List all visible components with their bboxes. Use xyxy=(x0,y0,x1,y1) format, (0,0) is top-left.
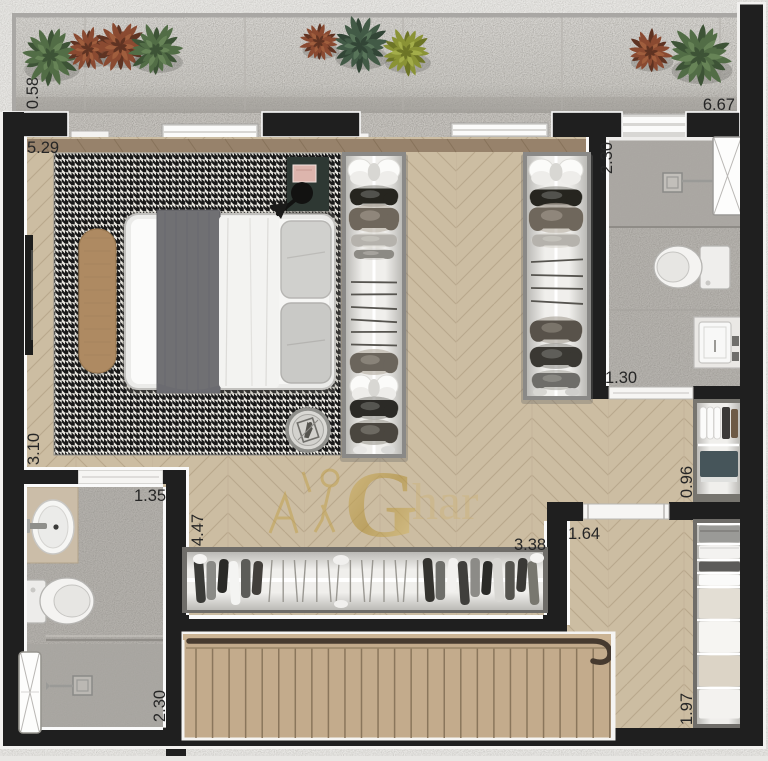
svg-text:3.38: 3.38 xyxy=(514,536,546,554)
svg-text:1.64: 1.64 xyxy=(568,525,600,543)
svg-text:0.96: 0.96 xyxy=(678,466,696,498)
svg-text:6.67: 6.67 xyxy=(703,96,735,114)
svg-text:1.30: 1.30 xyxy=(605,369,637,387)
svg-text:2.30: 2.30 xyxy=(598,142,616,174)
svg-text:0.58: 0.58 xyxy=(24,77,42,109)
svg-text:2.30: 2.30 xyxy=(151,690,169,722)
svg-text:5.29: 5.29 xyxy=(27,139,59,157)
svg-text:har: har xyxy=(412,474,478,531)
svg-text:1.97: 1.97 xyxy=(678,693,696,725)
svg-text:1.35: 1.35 xyxy=(134,487,166,505)
svg-text:4.47: 4.47 xyxy=(189,514,207,546)
svg-text:G: G xyxy=(344,451,418,557)
svg-text:3.10: 3.10 xyxy=(25,433,43,465)
